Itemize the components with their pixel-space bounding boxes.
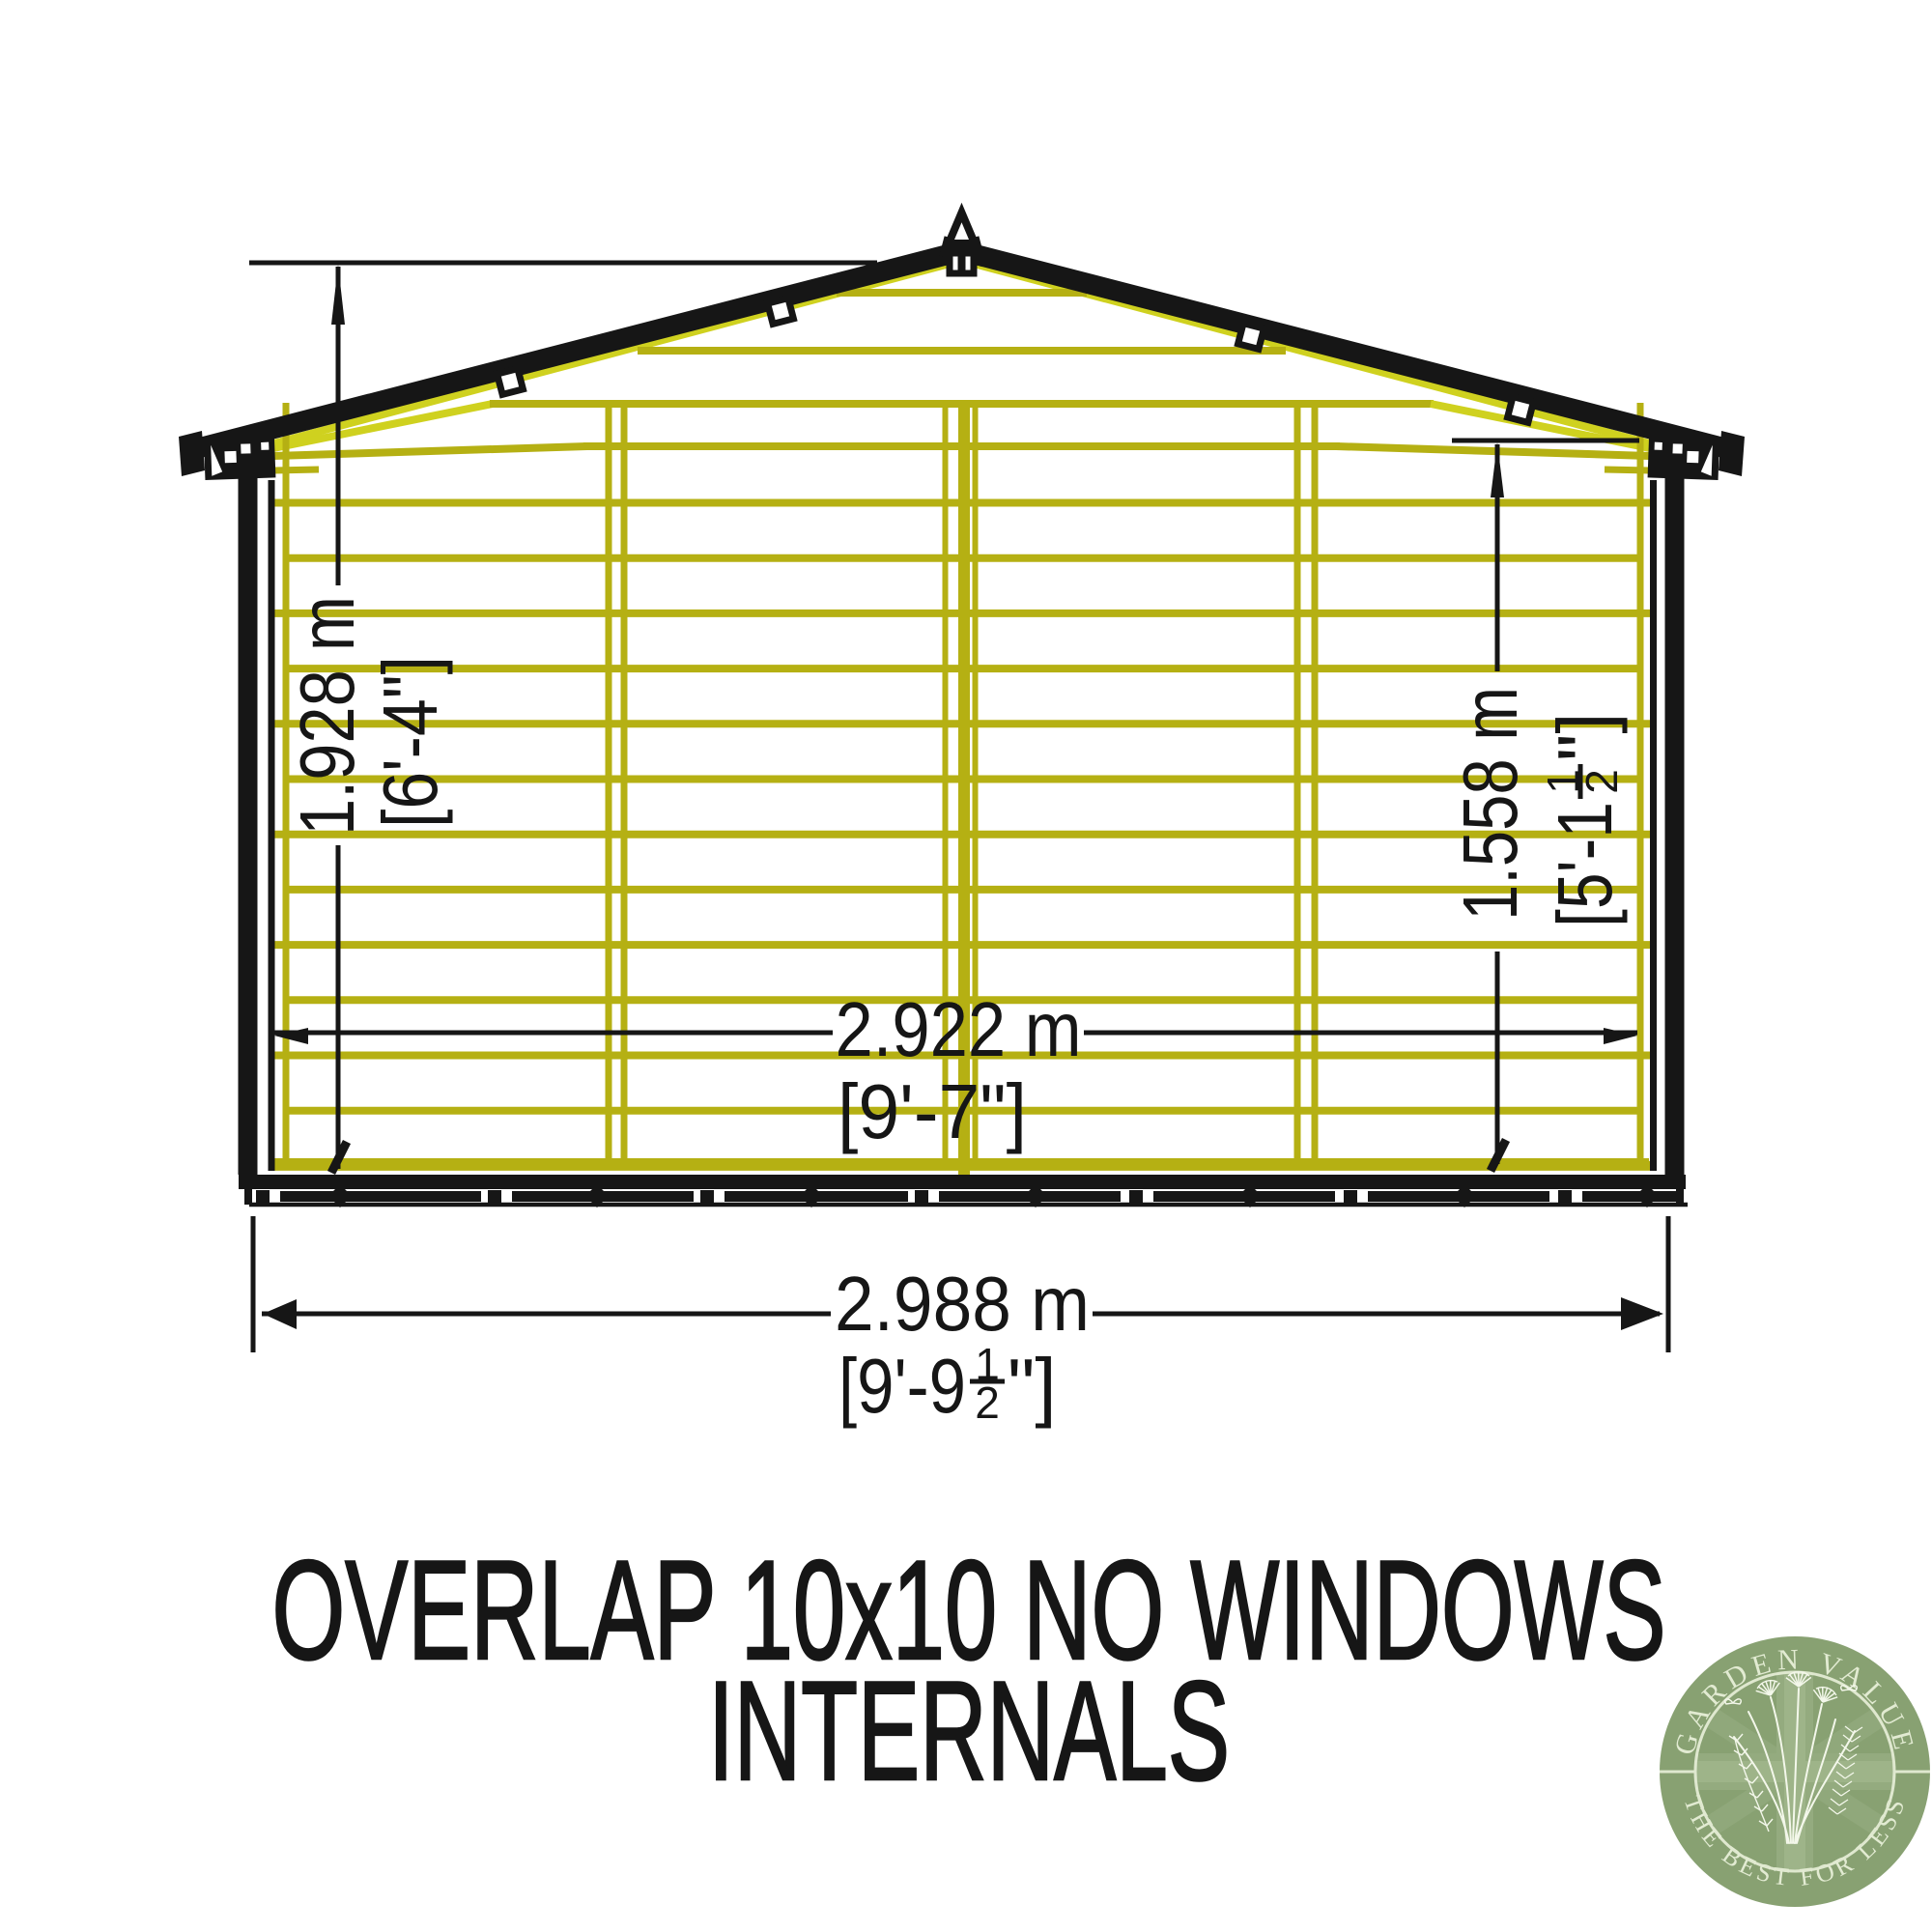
svg-text:2: 2 (975, 1378, 1000, 1428)
svg-text:[6'-4"]: [6'-4"] (367, 656, 453, 828)
svg-text:"]: "] (1008, 1343, 1057, 1429)
svg-text:1.928 m: 1.928 m (284, 596, 370, 836)
svg-text:[9'-7"]: [9'-7"] (838, 1068, 1027, 1154)
svg-text:[9'-9: [9'-9 (838, 1343, 966, 1429)
svg-text:1.558 m: 1.558 m (1447, 687, 1533, 921)
svg-text:[5'-1: [5'-1 (1542, 802, 1628, 927)
svg-text:INTERNALS: INTERNALS (708, 1652, 1230, 1809)
svg-text:2.922 m: 2.922 m (836, 986, 1082, 1072)
svg-text:2: 2 (1577, 769, 1627, 794)
svg-text:2.988 m: 2.988 m (835, 1261, 1090, 1347)
svg-text:"]: "] (1542, 712, 1628, 761)
